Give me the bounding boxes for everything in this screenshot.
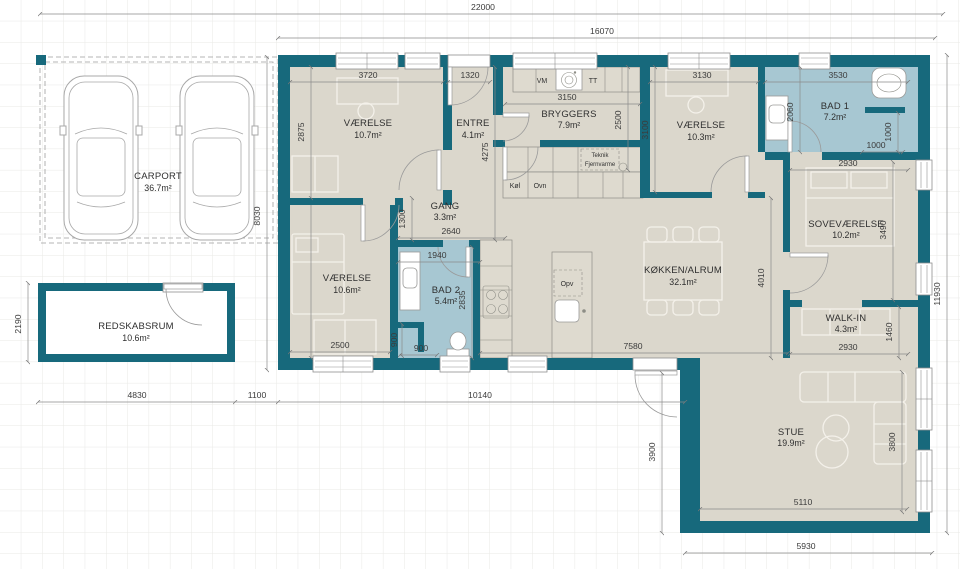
dim-3720: 3720 (358, 70, 377, 80)
label-ovn: Ovn (534, 183, 547, 190)
car-right (176, 76, 258, 240)
carport-post (36, 55, 46, 65)
dim-8030: 8030 (252, 206, 262, 225)
dim-2060: 2060 (785, 102, 795, 121)
svg-text:19.9m²: 19.9m² (777, 438, 804, 448)
room-label-carport: CARPORT (134, 171, 182, 182)
label-opv: Opv (561, 281, 574, 288)
dim-2190: 2190 (13, 314, 23, 333)
room-label-bad-1: BAD 1 (821, 101, 849, 112)
dim-5930: 5930 (796, 541, 815, 551)
dim-1320: 1320 (460, 70, 479, 80)
dim-4010: 4010 (756, 268, 766, 287)
redskabsrum-door (164, 284, 202, 289)
label-vm: VM (537, 78, 548, 85)
door-vaerelse2 (745, 156, 749, 192)
svg-text:32.1m²: 32.1m² (669, 277, 696, 287)
svg-text:7.9m²: 7.9m² (558, 120, 581, 130)
dim-3100: 3100 (640, 120, 650, 139)
label-teknik-1: Teknik (591, 153, 609, 159)
dim-2930-walkin: 2930 (838, 342, 857, 352)
dim-1940: 1940 (427, 250, 446, 260)
door-vaerelse3 (361, 205, 365, 241)
door-bryggers (503, 113, 529, 117)
dim-2930-bad1: 2930 (838, 158, 857, 168)
door-bryggers-koekken (503, 147, 507, 180)
room-label-walk-in: WALK-IN (826, 313, 867, 324)
dim-3800: 3800 (887, 432, 897, 451)
dim-3150: 3150 (557, 92, 576, 102)
dim-1460: 1460 (884, 322, 894, 341)
dim-900-v: 900 (389, 333, 399, 348)
door-sovevaerelse (790, 253, 828, 257)
car-left (60, 76, 142, 240)
label-teknik-2: Fjernvarme (585, 162, 616, 168)
room-label-entre: ENTRE (456, 118, 489, 129)
room-label-stue: STUE (778, 427, 804, 438)
dim-3530: 3530 (828, 70, 847, 80)
room-label-bryggers: BRYGGERS (541, 109, 596, 120)
dim-1000-v: 1000 (883, 122, 893, 141)
dim-4275: 4275 (480, 142, 490, 161)
dim-3900: 3900 (647, 442, 657, 461)
door-vaerelse1 (437, 150, 441, 190)
dim-7580: 7580 (623, 341, 642, 351)
island-sink-icon (555, 300, 579, 322)
dim-1300: 1300 (397, 209, 407, 228)
svg-text:7.2m²: 7.2m² (824, 112, 847, 122)
dim-16070: 16070 (590, 26, 614, 36)
svg-text:4.1m²: 4.1m² (462, 130, 485, 140)
room-label-bad-2: BAD 2 (432, 285, 460, 296)
room-label-vaerelse-2: VÆRELSE (677, 120, 725, 131)
washing-machine-icon (556, 68, 582, 90)
dim-4830: 4830 (127, 390, 146, 400)
dim-900-h: 900 (414, 343, 429, 353)
svg-text:10.6m²: 10.6m² (333, 285, 360, 295)
dim-3130: 3130 (692, 70, 711, 80)
terrace-door (633, 358, 677, 370)
svg-text:10.7m²: 10.7m² (354, 130, 381, 140)
front-door (448, 55, 490, 67)
svg-text:10.3m²: 10.3m² (687, 132, 714, 142)
svg-text:10.2m²: 10.2m² (832, 230, 859, 240)
dim-22000: 22000 (471, 2, 495, 12)
label-tt: TT (589, 78, 598, 85)
label-koel: Køl (510, 183, 521, 190)
dim-5110: 5110 (794, 497, 813, 507)
room-label-redskabsrum: REDSKABSRUM (98, 321, 174, 332)
dim-2500-vaerelse3: 2500 (330, 340, 349, 350)
room-area-redskabsrum: 10.6m² (122, 333, 149, 343)
room-label-gang: GANG (431, 201, 460, 212)
door-bad1 (788, 121, 792, 152)
dim-2835: 2835 (457, 290, 467, 309)
room-label-koekken-alrum: KØKKEN/ALRUM (644, 265, 722, 276)
svg-text:3.3m²: 3.3m² (434, 212, 457, 222)
dim-1100: 1100 (248, 390, 267, 400)
room-label-vaerelse-1: VÆRELSE (344, 118, 392, 129)
dim-11930: 11930 (932, 282, 942, 305)
dim-3490: 3490 (878, 220, 888, 239)
dim-2875: 2875 (296, 122, 306, 141)
floor-plan: CARPORT 36.7m² REDSKABSRUM 10.6m² (0, 0, 960, 569)
floor-plan-canvas: CARPORT 36.7m² REDSKABSRUM 10.6m² (0, 0, 960, 569)
room-area-carport: 36.7m² (144, 183, 171, 193)
dim-10140: 10140 (468, 390, 492, 400)
room-label-sovevaerelse: SOVEVÆRELSE (808, 219, 884, 230)
svg-text:5.4m²: 5.4m² (435, 296, 458, 306)
dim-2640: 2640 (441, 226, 460, 236)
room-label-vaerelse-3: VÆRELSE (323, 273, 371, 284)
dim-2500-bryggers: 2500 (613, 110, 623, 129)
svg-text:4.3m²: 4.3m² (835, 324, 858, 334)
redskabsrum: REDSKABSRUM 10.6m² (38, 283, 235, 362)
